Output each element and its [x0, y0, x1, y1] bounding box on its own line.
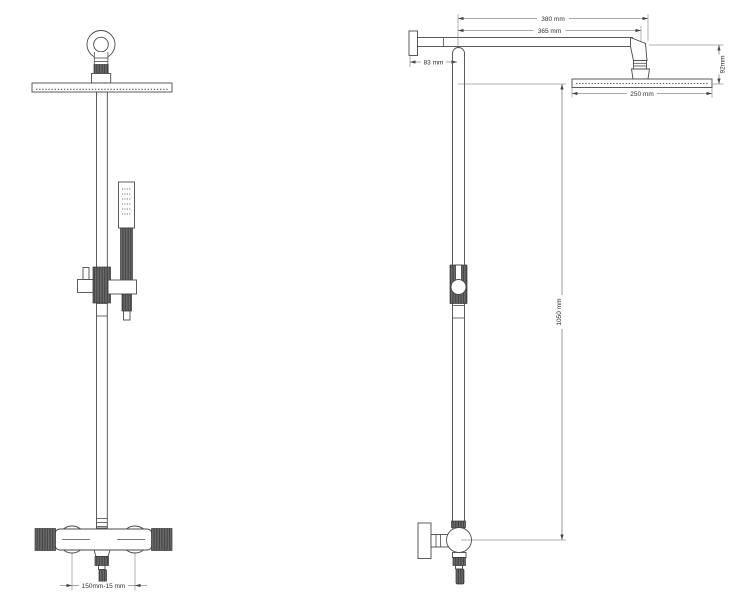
dim-label-arm-to-head: 365 mm	[538, 28, 561, 35]
dim-label-wall-offset: 83 mm	[424, 60, 444, 67]
riser-pipe-front	[97, 92, 108, 528]
dim-label-head-drop: 92mm	[719, 55, 726, 73]
dim-label-head-diameter: 250 mm	[630, 91, 653, 98]
clamp-knob	[451, 280, 466, 295]
diverter-lever-stub	[83, 268, 89, 280]
rain-shower-head-front	[32, 83, 172, 92]
dimension-wall-offset: 83 mm	[410, 56, 457, 67]
rain-shower-head-side	[572, 79, 712, 88]
dimension-head-drop: 92mm	[649, 45, 726, 84]
mixer-valve-front	[35, 526, 172, 584]
dimension-head-diameter: 250 mm	[572, 88, 712, 98]
hand-shower	[119, 182, 135, 281]
hose-tip	[124, 311, 131, 320]
front-view: 150mm-15 mm	[32, 31, 172, 591]
diverter-lever	[78, 280, 94, 293]
arm-wall-flange	[409, 31, 418, 56]
dim-label-riser-height: 1050 mm	[556, 298, 563, 325]
valve-outlet-side	[456, 569, 464, 584]
valve-handle-right	[152, 529, 173, 551]
side-view: 380 mm 365 mm 83 mm 92mm	[409, 14, 726, 584]
hand-shower-holder	[108, 280, 137, 294]
technical-drawing-page: 150mm-15 mm	[0, 0, 738, 600]
hanging-ring	[87, 31, 115, 84]
arm-elbow	[631, 38, 650, 80]
hose-nut	[122, 294, 132, 311]
valve-wall-plate	[418, 523, 431, 559]
dim-label-arm-total: 380 mm	[541, 16, 564, 23]
mixer-valve-side	[418, 523, 472, 584]
valve-handle-left	[35, 529, 56, 551]
dimension-riser-height: 1050 mm	[458, 84, 566, 540]
shower-arm	[418, 38, 633, 47]
shower-dimension-diagram: 150mm-15 mm	[0, 0, 738, 600]
pipe-coupling-side	[452, 521, 466, 528]
dim-label-valve-spacing: 150mm-15 mm	[82, 583, 126, 590]
